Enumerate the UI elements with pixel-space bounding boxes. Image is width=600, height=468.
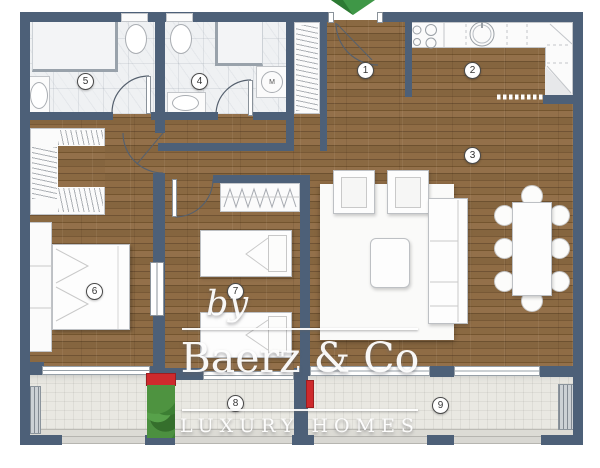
sink	[30, 82, 48, 109]
armchair-cushion	[395, 177, 421, 208]
bed-headboard	[28, 222, 52, 352]
entrance-door-post	[377, 12, 383, 23]
shower	[215, 20, 263, 66]
dining-table	[512, 202, 552, 296]
closet-floor-notch	[58, 146, 105, 187]
wall-bed1-south-left	[20, 362, 44, 375]
wall-living-south-b	[540, 366, 575, 377]
room-number-living: 3	[464, 147, 481, 164]
plant	[147, 385, 175, 438]
bedroom2-closet	[220, 183, 300, 212]
washing-machine-drum: M	[261, 71, 283, 93]
bedroom2-door-leaf	[172, 179, 177, 217]
dining-chair	[549, 238, 570, 259]
railing-post	[541, 435, 583, 445]
sink	[172, 95, 199, 111]
railing-post	[20, 435, 62, 445]
shower	[32, 20, 118, 72]
dining-chair	[549, 271, 570, 292]
room-number-bathroom2: 4	[191, 73, 208, 90]
bathroom1-door-leaf	[146, 76, 151, 114]
wall-bath-south-b	[151, 112, 218, 120]
room-number-bathroom1: 5	[77, 73, 94, 90]
closet-hangers-icon	[296, 25, 318, 111]
wall-entry-closet-right	[320, 12, 327, 151]
closet-hangers-icon	[58, 188, 103, 212]
wall-bath-south-a	[28, 112, 113, 120]
window-living-right	[454, 366, 540, 376]
watermark-tagline: LUXURY HOMES	[178, 415, 422, 437]
washing-machine: M	[256, 66, 288, 98]
watermark-rule	[182, 409, 418, 411]
kitchen-counter-top	[407, 22, 573, 48]
sofa	[428, 198, 468, 324]
closet-hangers-icon	[58, 130, 103, 145]
watermark-brand: Baerz & Co	[178, 334, 422, 382]
toilet-cistern	[121, 13, 148, 22]
room-number-bedroom1: 6	[86, 283, 103, 300]
kitchen-counter-right	[545, 47, 573, 95]
toilet-cistern	[166, 13, 193, 22]
room-number-balcony2: 9	[432, 397, 449, 414]
window-bedroom1	[42, 366, 150, 375]
wall-corridor-stub	[155, 120, 165, 133]
wall-bath2-right	[286, 12, 294, 151]
wall-living-south-a	[430, 366, 454, 377]
wall-bedroom2-north	[213, 175, 310, 183]
red-divider-accent	[306, 380, 314, 408]
coffee-table	[370, 238, 410, 288]
bedroom1-pocket-door	[150, 262, 164, 316]
toilet	[125, 24, 147, 54]
room-number-entrance: 1	[357, 62, 374, 79]
floor-plan: M	[0, 0, 600, 468]
wall-bath-south-c	[253, 112, 294, 120]
railing-post	[427, 435, 454, 445]
bathroom2-door-leaf	[248, 80, 253, 116]
toilet	[170, 24, 192, 54]
washing-machine-label: M	[269, 79, 275, 86]
dining-chair	[549, 205, 570, 226]
entrance-arrow-icon	[330, 0, 376, 16]
watermark-rule	[182, 328, 418, 330]
bed-pillow	[268, 235, 287, 272]
armchair-cushion	[341, 177, 367, 208]
closet-hangers-icon	[32, 147, 57, 199]
wall-kitchen-hall	[405, 20, 412, 97]
wall-kitchen-stub	[543, 95, 575, 104]
wall-bath-divider	[155, 12, 165, 120]
room-number-kitchen: 2	[464, 62, 481, 79]
wall-corridor-north	[158, 143, 294, 151]
watermark-prefix: by	[206, 284, 248, 324]
